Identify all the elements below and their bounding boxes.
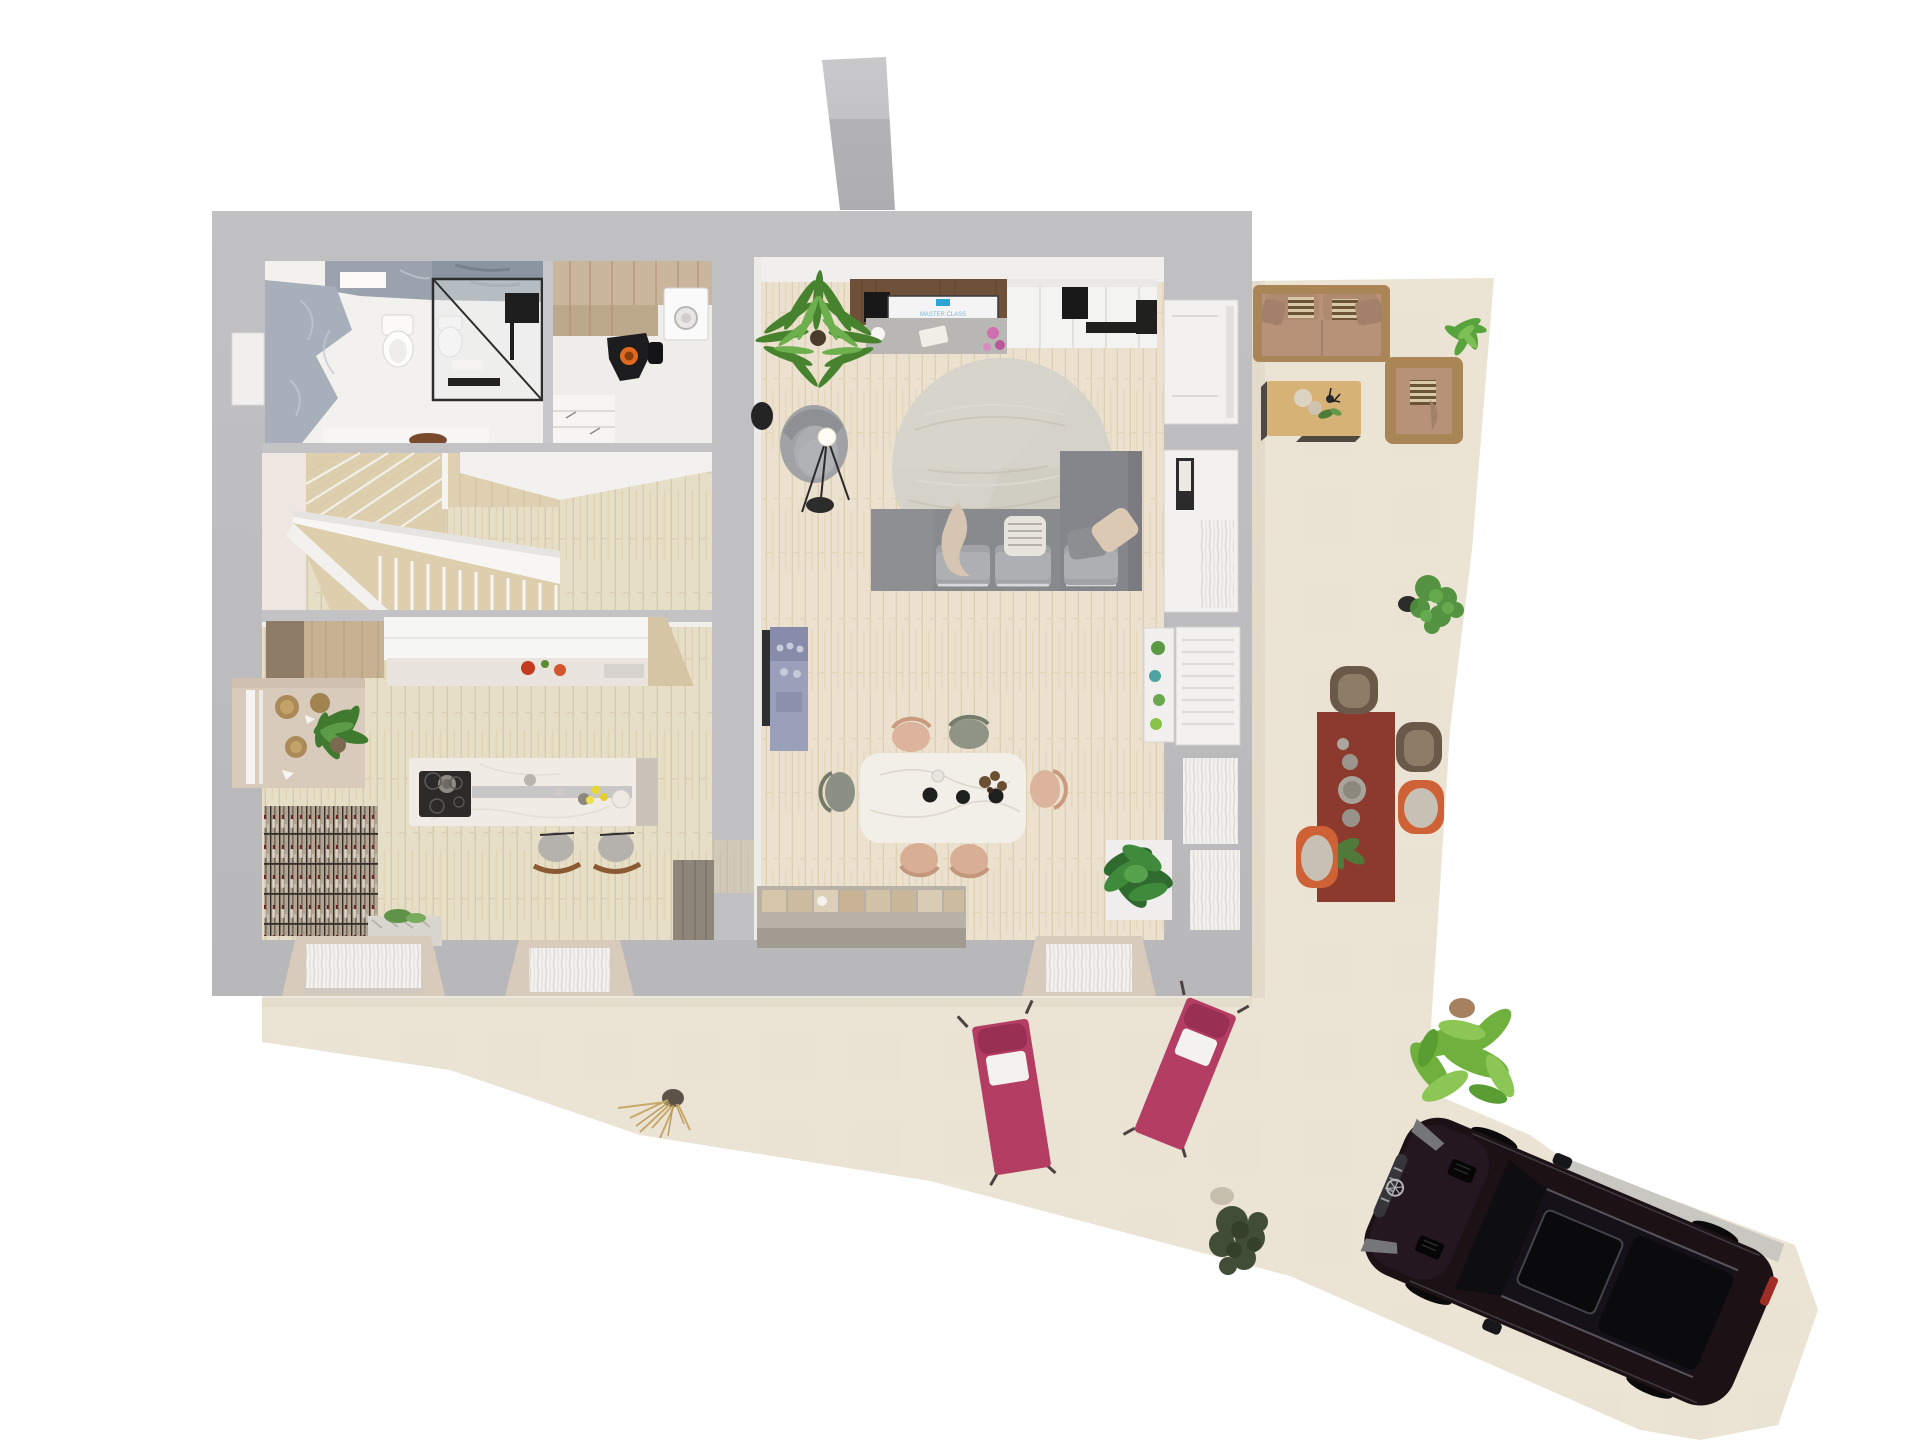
svg-text:MASTER CLASS: MASTER CLASS [920,312,966,318]
